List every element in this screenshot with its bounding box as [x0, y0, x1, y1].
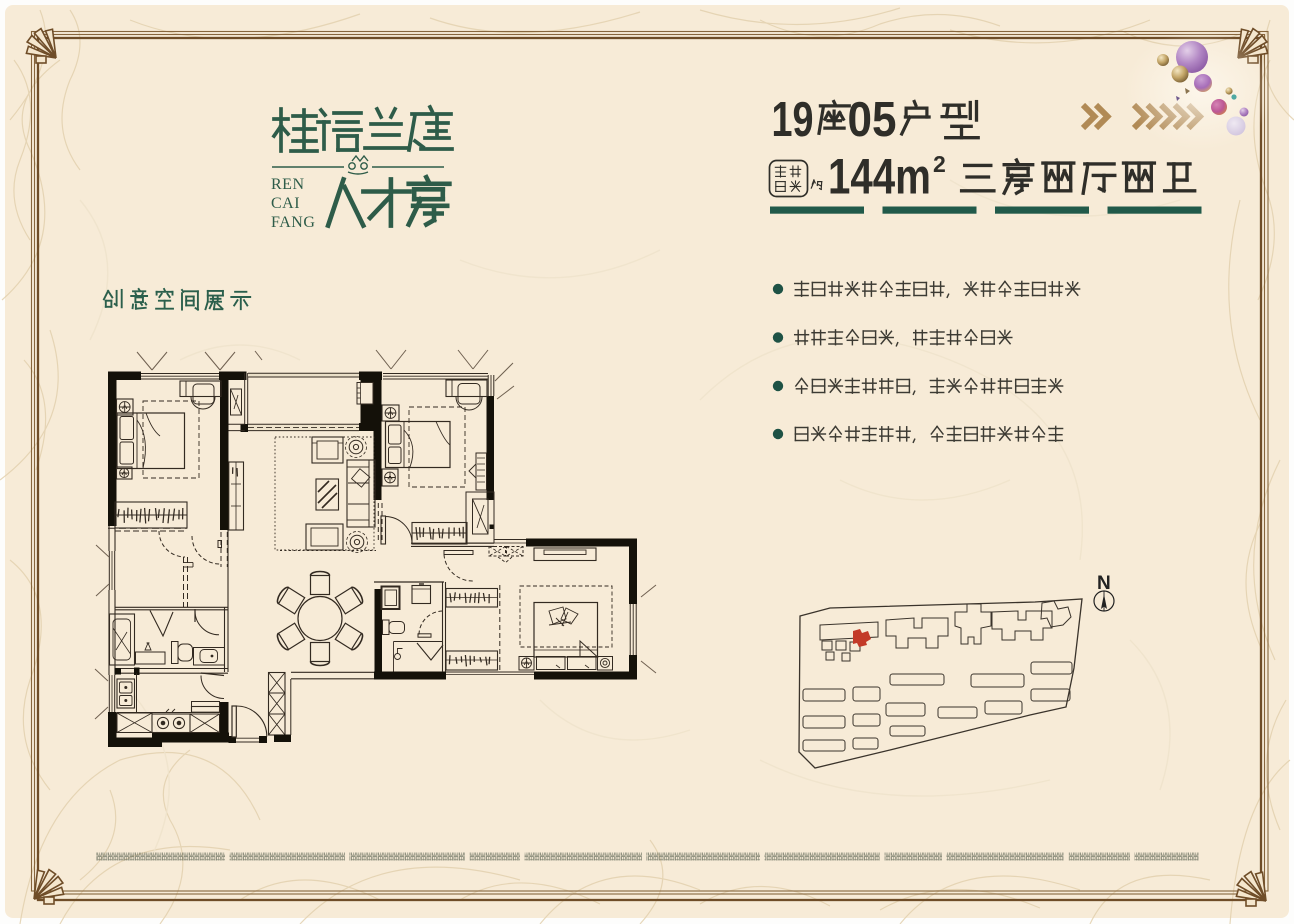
svg-text:FANG: FANG: [271, 214, 315, 231]
svg-text:19: 19: [772, 93, 814, 147]
svg-text:144m: 144m: [828, 149, 931, 205]
svg-text:REN: REN: [271, 176, 305, 193]
svg-text:05: 05: [848, 93, 897, 147]
svg-text:2: 2: [933, 151, 946, 177]
svg-text:CAI: CAI: [271, 195, 300, 212]
